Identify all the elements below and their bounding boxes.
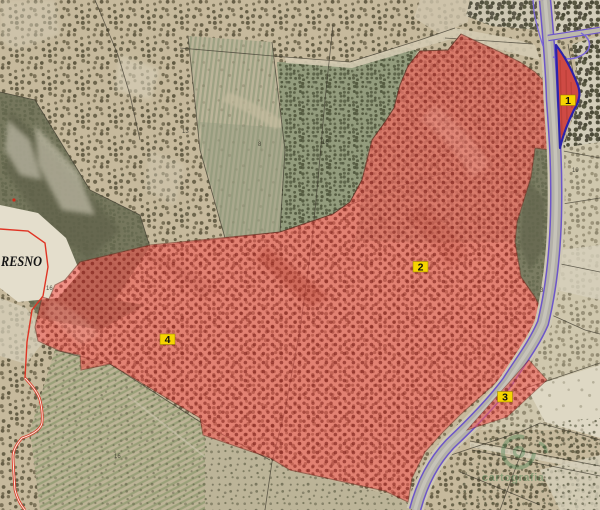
svg-text:16: 16 [46,286,53,292]
svg-text:RESNO: RESNO [0,254,42,270]
svg-text:16: 16 [322,140,329,146]
svg-text:2: 2 [418,262,424,274]
svg-text:1: 1 [565,95,571,107]
svg-text:cartografia: cartografia [482,472,545,484]
svg-text:13: 13 [182,129,189,135]
svg-text:4: 4 [165,334,171,346]
svg-text:16: 16 [114,454,121,460]
svg-text:3: 3 [502,392,508,404]
svg-text:19: 19 [572,168,579,174]
